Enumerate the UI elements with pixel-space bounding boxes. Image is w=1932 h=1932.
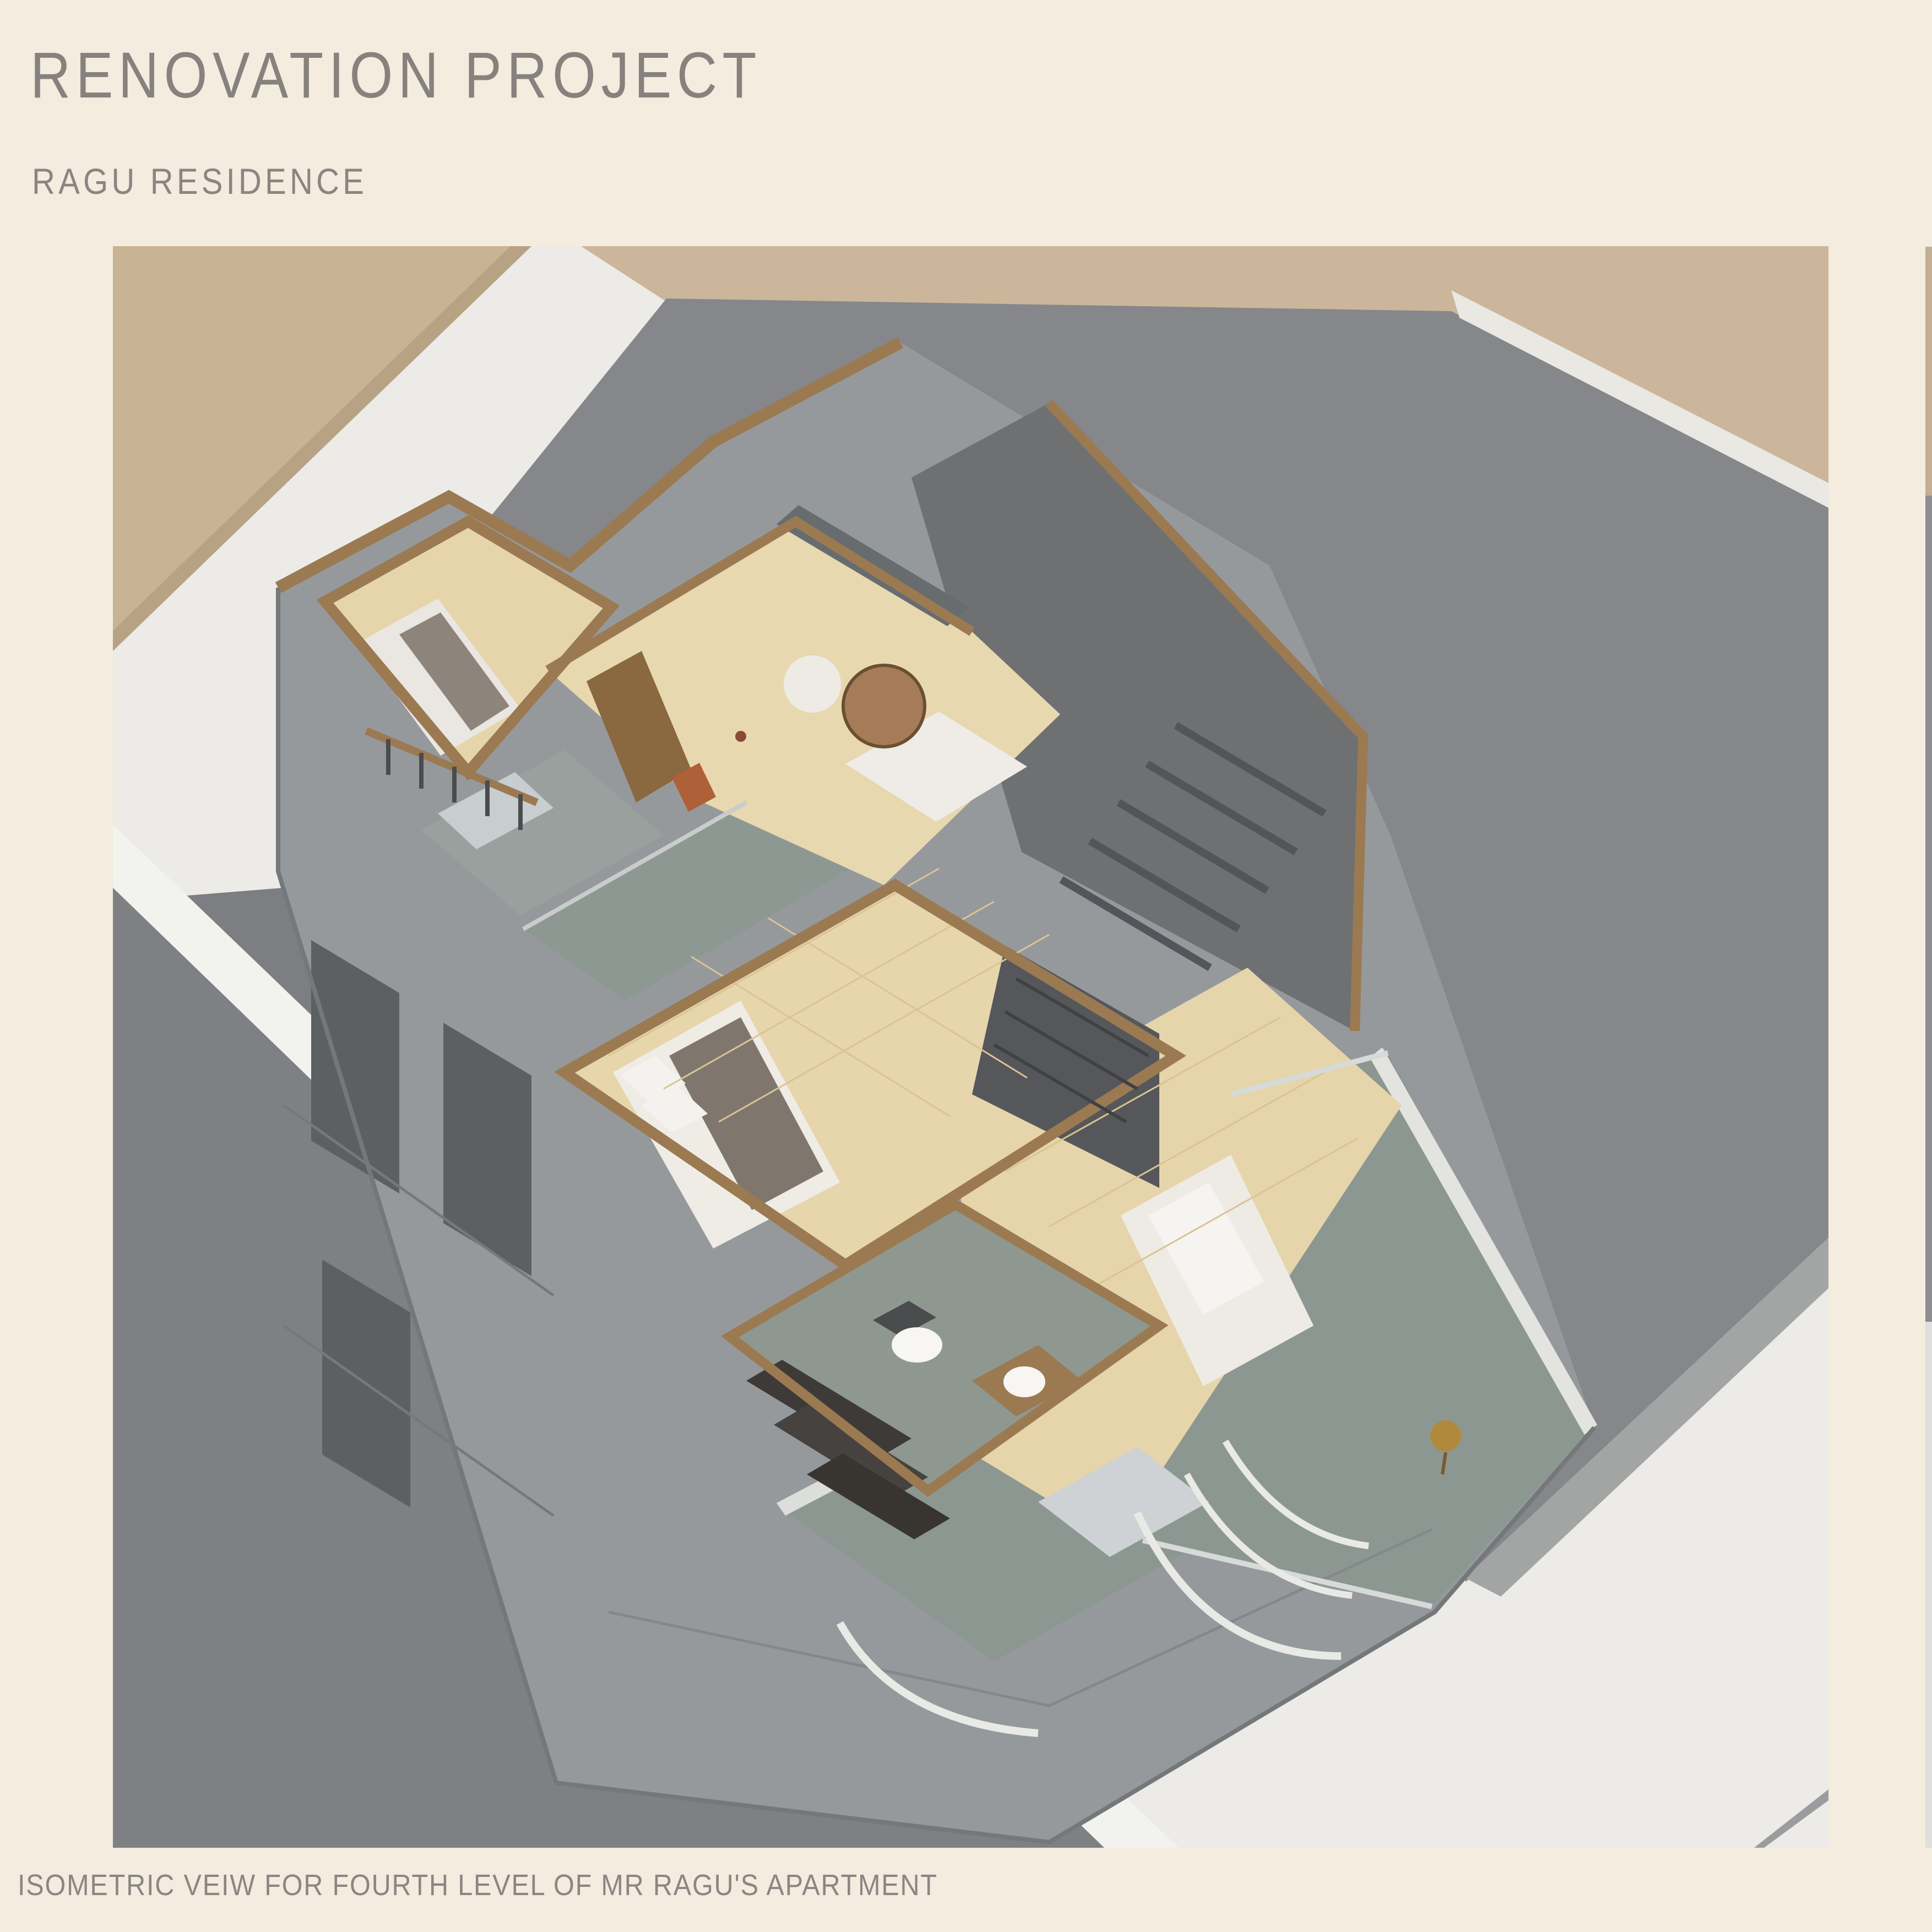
- round-table: [843, 665, 925, 747]
- hall-armchair: [784, 655, 841, 713]
- edge-image-sliver: [1925, 247, 1932, 1848]
- sliver-road-segment: [1925, 496, 1932, 1322]
- sliver-sidewalk-segment: [1925, 247, 1932, 496]
- toilet-bowl: [892, 1327, 942, 1363]
- page-title: RENOVATION PROJECT: [30, 43, 762, 108]
- caption: ISOMETRIC VEIW FOR FOURTH LEVEL OF MR RA…: [18, 1870, 938, 1900]
- isometric-rendering: [113, 246, 1828, 1848]
- red-pin: [735, 731, 746, 742]
- sliver-pavement-segment: [1925, 1322, 1932, 1848]
- page-subtitle: RAGU RESIDENCE: [32, 163, 367, 199]
- isometric-scene-svg: [113, 246, 1828, 1848]
- plant-head: [1430, 1420, 1461, 1451]
- sink-basin: [1003, 1366, 1045, 1397]
